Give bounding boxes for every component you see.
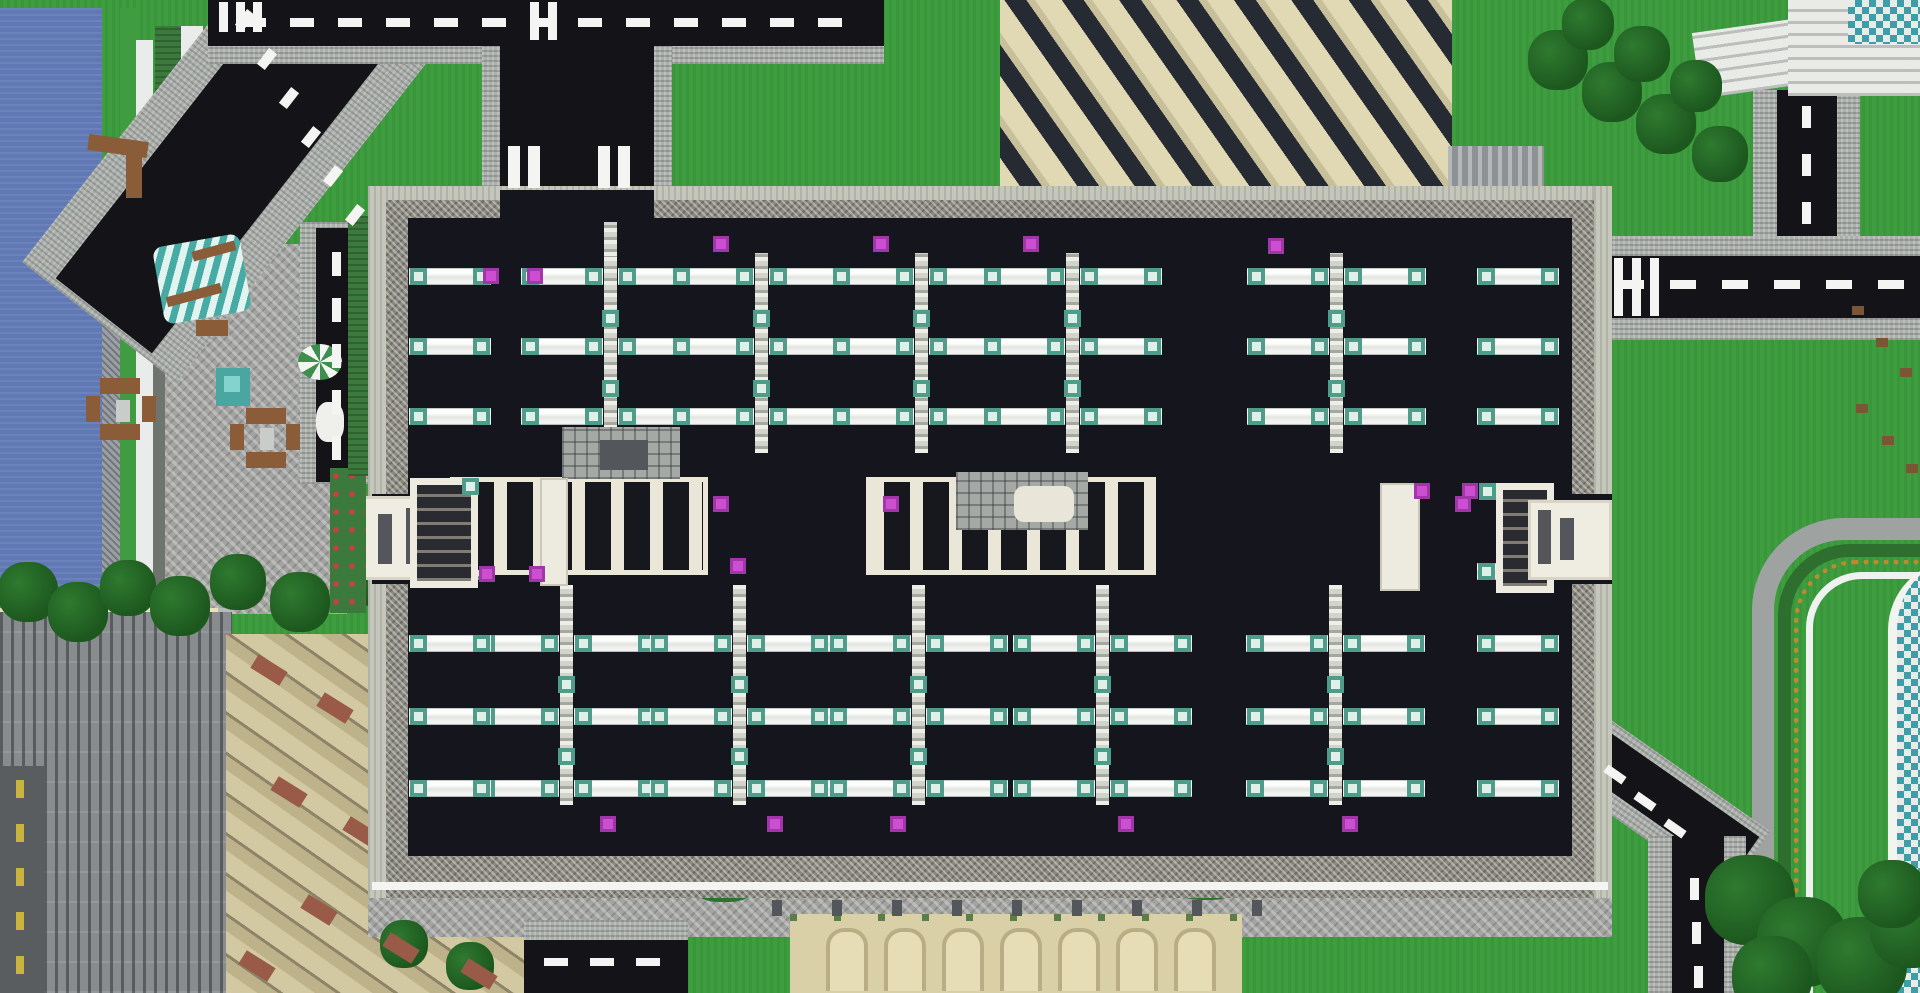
stall-cap <box>1248 268 1265 285</box>
lane-dash-ne-branch <box>1802 202 1811 224</box>
hedge-lot-west <box>348 216 368 476</box>
plaza-pillar <box>1072 900 1082 916</box>
arch-window <box>1000 928 1042 991</box>
lane-dash-west <box>332 390 341 414</box>
stall-cap <box>984 338 1001 355</box>
gate-cap-east <box>1479 483 1496 500</box>
stall-cap <box>896 408 913 425</box>
stall-cap <box>473 338 490 355</box>
stall-cap <box>714 635 731 652</box>
stall-cap <box>1081 268 1098 285</box>
lot-north-driveway <box>500 44 654 194</box>
spine-cap <box>913 380 930 397</box>
lane-dash-north <box>338 18 362 27</box>
stall-cap <box>410 338 427 355</box>
magenta-light <box>883 496 899 512</box>
stall-cap <box>833 408 850 425</box>
magenta-light <box>713 496 729 512</box>
stall-cap <box>1174 708 1191 725</box>
road-east-sidewalk-top <box>1598 236 1920 256</box>
stall-cap <box>748 780 765 797</box>
magenta-light <box>767 816 783 832</box>
stall-cap <box>1541 635 1558 652</box>
parking-row-spine <box>733 585 746 805</box>
stall-cap <box>1247 780 1264 797</box>
stall-cap <box>930 338 947 355</box>
parking-row-spine <box>1096 585 1109 805</box>
road-east-sidewalk-bottom <box>1598 318 1920 340</box>
stall-cap <box>575 708 592 725</box>
crosswalk-east-road <box>1650 258 1659 316</box>
stall-cap <box>1478 780 1495 797</box>
plaza-pillar <box>892 900 902 916</box>
lane-dash-yellow-shadow-road <box>16 912 24 930</box>
stall-cap <box>651 708 668 725</box>
arch-window <box>884 928 926 991</box>
stall-cap <box>1478 563 1495 580</box>
magenta-light <box>600 816 616 832</box>
stall-cap <box>1478 635 1495 652</box>
plaza-pillar <box>1132 900 1142 916</box>
stall-cap <box>1311 268 1328 285</box>
tree <box>270 572 330 632</box>
lane-dash-east-road <box>1774 280 1800 289</box>
crosswalk-north <box>548 2 557 40</box>
road-se-sidewalk-left <box>1648 836 1672 993</box>
lane-dash-north <box>674 18 698 27</box>
stall-cap <box>473 635 490 652</box>
stall-cap <box>830 708 847 725</box>
stall-cap <box>673 408 690 425</box>
magenta-light <box>483 268 499 284</box>
stall-cap <box>1047 408 1064 425</box>
parking-row-spine <box>604 253 617 453</box>
parking-row-spine <box>915 253 928 453</box>
stall-cap <box>811 635 828 652</box>
stall-cap <box>1408 408 1425 425</box>
road-south-sidewalk <box>524 920 688 942</box>
stall-cap <box>1408 338 1425 355</box>
tree <box>1732 936 1812 993</box>
driveway-crosswalk-left <box>528 146 540 188</box>
lane-dash-se-vertical <box>1690 878 1699 900</box>
stall-cap <box>1111 708 1128 725</box>
stall-cap <box>619 268 636 285</box>
stall-cap <box>830 635 847 652</box>
stall-cap <box>1111 635 1128 652</box>
magenta-light <box>529 566 545 582</box>
tree <box>1562 0 1614 50</box>
stall-cap <box>833 338 850 355</box>
flower-hedge-west <box>330 468 366 613</box>
lane-dash-east-road <box>1826 280 1852 289</box>
small-boat <box>196 320 228 336</box>
magenta-light <box>1023 236 1039 252</box>
stall-cap <box>585 338 602 355</box>
stall-cap <box>410 268 427 285</box>
tree <box>1614 26 1670 82</box>
stall-cap <box>1077 780 1094 797</box>
lot-driveway-sidewalk-east <box>654 46 672 192</box>
stall-cap <box>1144 268 1161 285</box>
stall-cap <box>1174 635 1191 652</box>
stall-cap <box>1081 408 1098 425</box>
lane-dash-west <box>332 436 341 460</box>
plaza-pillar <box>772 900 782 916</box>
spine-cap <box>913 310 930 327</box>
tree <box>210 554 266 610</box>
lot-wall-south-line <box>372 882 1608 890</box>
crosswalk-east-road <box>1632 258 1641 316</box>
stall-cap <box>1081 338 1098 355</box>
stall-cap <box>927 708 944 725</box>
magenta-light <box>1462 483 1478 499</box>
arch-window <box>1174 928 1216 991</box>
bench-cluster-1d <box>142 396 156 422</box>
lane-dash-north <box>386 18 410 27</box>
lane-dash-ne-branch <box>1802 154 1811 176</box>
stall-cap <box>1077 708 1094 725</box>
stall-cap <box>575 780 592 797</box>
stall-cap <box>1144 408 1161 425</box>
magenta-light <box>1414 483 1430 499</box>
stall-cap <box>1310 780 1327 797</box>
parking-row-spine <box>1066 253 1079 453</box>
stall-cap <box>990 780 1007 797</box>
stall-cap <box>896 268 913 285</box>
plaza-pillar <box>1252 900 1262 916</box>
lane-dash-south-road <box>636 958 660 966</box>
bench-cluster-2c <box>230 424 244 450</box>
plaza-pillar <box>832 900 842 916</box>
lane-dash-se-vertical <box>1692 922 1701 944</box>
stall-cap <box>1344 708 1361 725</box>
stall-cap <box>736 268 753 285</box>
stall-cap <box>736 408 753 425</box>
driveway-crosswalk-right <box>618 146 630 188</box>
gate-cap-west <box>462 478 479 495</box>
spine-cap <box>558 748 575 765</box>
spine-cap <box>602 380 619 397</box>
stall-cap <box>619 338 636 355</box>
north-walkway-spine <box>604 222 617 256</box>
spine-cap <box>910 676 927 693</box>
stall-cap <box>990 635 1007 652</box>
bench-cluster-1c <box>86 396 100 422</box>
stall-cap <box>748 635 765 652</box>
stall-cap <box>1541 408 1558 425</box>
spine-cap <box>1328 380 1345 397</box>
toll-booth-east-window <box>1538 510 1551 564</box>
stall-cap <box>893 708 910 725</box>
lane-dash-north <box>626 18 650 27</box>
stall-cap <box>473 780 490 797</box>
stall-cap <box>811 708 828 725</box>
stall-cap <box>410 635 427 652</box>
lane-dash-north <box>482 18 506 27</box>
stall-cap <box>1407 635 1424 652</box>
stall-cap <box>984 408 1001 425</box>
parking-row-spine <box>1330 253 1343 453</box>
stall-cap <box>1345 338 1362 355</box>
stall-cap <box>1408 268 1425 285</box>
stall-cap <box>927 635 944 652</box>
lane-dash-south-road <box>590 958 614 966</box>
bench-cluster-1a <box>100 378 140 394</box>
road-east <box>1598 256 1920 318</box>
lane-dash-yellow-shadow-road <box>16 956 24 974</box>
arch-window <box>942 928 984 991</box>
stall-cap <box>673 268 690 285</box>
lane-dash-west <box>332 344 341 368</box>
lane-dash-east-road <box>1722 280 1748 289</box>
carport-center-west <box>450 477 708 575</box>
stall-cap <box>830 780 847 797</box>
lane-dash-north <box>722 18 746 27</box>
stall-cap <box>927 780 944 797</box>
plaza-pillar <box>952 900 962 916</box>
spine-cap <box>1094 748 1111 765</box>
stall-cap <box>833 268 850 285</box>
road-south <box>524 940 688 993</box>
stall-cap <box>896 338 913 355</box>
parking-row-spine <box>755 253 768 453</box>
stall-cap <box>1014 780 1031 797</box>
stall-cap <box>1541 780 1558 797</box>
arch-window <box>1116 928 1158 991</box>
stall-cap <box>770 338 787 355</box>
stall-cap <box>1310 708 1327 725</box>
lane-dash-north <box>770 18 794 27</box>
stall-cap <box>1478 408 1495 425</box>
stall-cap <box>1144 338 1161 355</box>
arch-window <box>1058 928 1100 991</box>
stall-cap <box>1478 708 1495 725</box>
tree-trunk <box>1906 464 1918 473</box>
lane-dash-north <box>434 18 458 27</box>
stall-cap <box>990 708 1007 725</box>
road-ne-branch-sidewalk-right <box>1836 90 1860 254</box>
stall-cap <box>1478 338 1495 355</box>
driveway-crosswalk-left <box>508 146 520 188</box>
stall-cap <box>651 635 668 652</box>
lane-dash-west <box>332 252 341 276</box>
stall-cap <box>1311 408 1328 425</box>
lane-dash-north <box>818 18 842 27</box>
spine-cap <box>1094 676 1111 693</box>
tree-trunk <box>1876 338 1888 347</box>
bench-cluster-2b <box>246 452 286 468</box>
stall-cap <box>1247 635 1264 652</box>
office-building-northeast <box>1000 0 1452 196</box>
lane-dash-west <box>332 298 341 322</box>
crosswalk-north <box>530 2 539 40</box>
spine-cap <box>1327 748 1344 765</box>
stall-cap <box>522 338 539 355</box>
bench-cluster-1-center <box>116 400 130 422</box>
spine-cap <box>1327 676 1344 693</box>
stall-cap <box>1344 780 1361 797</box>
stall-cap <box>1478 268 1495 285</box>
lane-dash-ne-branch <box>1802 106 1811 128</box>
stall-cap <box>1541 708 1558 725</box>
gate-pillar-east-outer <box>1380 483 1420 591</box>
stall-cap <box>984 268 1001 285</box>
magenta-light <box>1118 816 1134 832</box>
stall-cap <box>1407 780 1424 797</box>
stall-cap <box>1541 268 1558 285</box>
tree <box>48 582 108 642</box>
crosswalk-northwest <box>219 2 228 32</box>
spine-cap <box>753 380 770 397</box>
tree <box>1670 60 1722 112</box>
toll-booth-east-door <box>1560 518 1574 560</box>
stall-cap <box>1311 338 1328 355</box>
plaza-pillar <box>1192 900 1202 916</box>
bench-cluster-1b <box>100 424 140 440</box>
lane-dash-yellow-shadow-road <box>16 824 24 842</box>
crosswalk-east-road <box>1614 258 1623 316</box>
stall-cap <box>585 408 602 425</box>
spine-cap <box>731 748 748 765</box>
stall-cap <box>1247 708 1264 725</box>
stall-cap <box>1310 635 1327 652</box>
sail-ship <box>152 233 252 325</box>
arch-window <box>826 928 868 991</box>
spine-cap <box>1328 310 1345 327</box>
tree-trunk <box>1856 404 1868 413</box>
lane-dash-north <box>290 18 314 27</box>
tree <box>1858 860 1920 928</box>
magenta-light <box>713 236 729 252</box>
tree <box>100 560 156 616</box>
tree-trunk <box>1882 436 1894 445</box>
spine-cap <box>1064 380 1081 397</box>
stall-cap <box>522 408 539 425</box>
lane-dash-se-vertical <box>1694 966 1703 988</box>
stall-cap <box>770 408 787 425</box>
bench-cluster-2d <box>286 424 300 450</box>
stall-cap <box>1345 408 1362 425</box>
tree-trunk <box>1852 306 1864 315</box>
stall-cap <box>1174 780 1191 797</box>
stall-cap <box>714 780 731 797</box>
lane-dash-yellow-shadow-road <box>16 868 24 886</box>
magenta-light <box>890 816 906 832</box>
stall-cap <box>673 338 690 355</box>
stall-cap <box>541 780 558 797</box>
stall-cap <box>541 708 558 725</box>
magenta-light <box>527 268 543 284</box>
stall-cap <box>893 635 910 652</box>
stall-cap <box>1541 338 1558 355</box>
stall-cap <box>1014 708 1031 725</box>
magenta-light <box>730 558 746 574</box>
spine-cap <box>558 676 575 693</box>
stall-cap <box>1014 635 1031 652</box>
stall-cap <box>736 338 753 355</box>
stall-cap <box>651 780 668 797</box>
toll-booth-west-window <box>378 514 392 564</box>
stall-cap <box>473 708 490 725</box>
glass-roof-teal <box>1848 0 1920 44</box>
spine-cap <box>753 310 770 327</box>
parking-row-spine <box>912 585 925 805</box>
stall-cap <box>893 780 910 797</box>
stall-cap <box>410 780 427 797</box>
stall-cap <box>1248 338 1265 355</box>
lane-dash-east-road <box>1878 280 1904 289</box>
stall-cap <box>473 408 490 425</box>
stall-cap <box>748 708 765 725</box>
spine-cap <box>731 676 748 693</box>
magenta-light <box>479 566 495 582</box>
stall-cap <box>1407 708 1424 725</box>
spine-cap <box>1064 310 1081 327</box>
spine-cap <box>602 310 619 327</box>
lane-dash-yellow-shadow-road <box>16 780 24 798</box>
wooden-dock-arm <box>126 152 142 198</box>
road-ne-branch-sidewalk-left <box>1753 90 1777 254</box>
parking-row-spine <box>1329 585 1342 805</box>
stall-cap <box>1344 635 1361 652</box>
stall-cap <box>585 268 602 285</box>
stall-cap <box>619 408 636 425</box>
stall-cap <box>1345 268 1362 285</box>
stall-cap <box>770 268 787 285</box>
stall-cap <box>575 635 592 652</box>
stall-cap <box>930 268 947 285</box>
stall-cap <box>1111 780 1128 797</box>
stall-cap <box>930 408 947 425</box>
stall-cap <box>541 635 558 652</box>
roof-building-a-vent <box>600 440 648 470</box>
tree <box>1692 126 1748 182</box>
bench-cluster-2-center <box>260 428 274 450</box>
tree <box>150 576 210 636</box>
lane-dash-south-road <box>544 958 568 966</box>
lot-driveway-sidewalk-west <box>482 46 500 192</box>
stall-cap <box>714 708 731 725</box>
parking-row-spine <box>560 585 573 805</box>
lot-gate-north <box>500 190 654 220</box>
stall-cap <box>1248 408 1265 425</box>
lane-dash-north <box>578 18 602 27</box>
magenta-light <box>873 236 889 252</box>
stall-cap <box>410 408 427 425</box>
minecraft-city-overhead-view <box>0 0 1920 993</box>
bench-cluster-2a <box>246 408 286 424</box>
spine-cap <box>910 748 927 765</box>
stall-cap <box>1047 338 1064 355</box>
driveway-crosswalk-right <box>598 146 610 188</box>
plaza-pillar <box>1012 900 1022 916</box>
crosswalk-northwest <box>253 2 262 32</box>
magenta-light <box>1268 238 1284 254</box>
roof-building-b-dome <box>1014 486 1074 522</box>
stall-cap <box>811 780 828 797</box>
lane-dash-east-road <box>1670 280 1696 289</box>
plaza-statue-head <box>224 376 240 392</box>
stall-cap <box>1047 268 1064 285</box>
stall-cap <box>410 708 427 725</box>
stall-cap <box>1077 635 1094 652</box>
tree-trunk <box>1900 368 1912 377</box>
magenta-light <box>1342 816 1358 832</box>
